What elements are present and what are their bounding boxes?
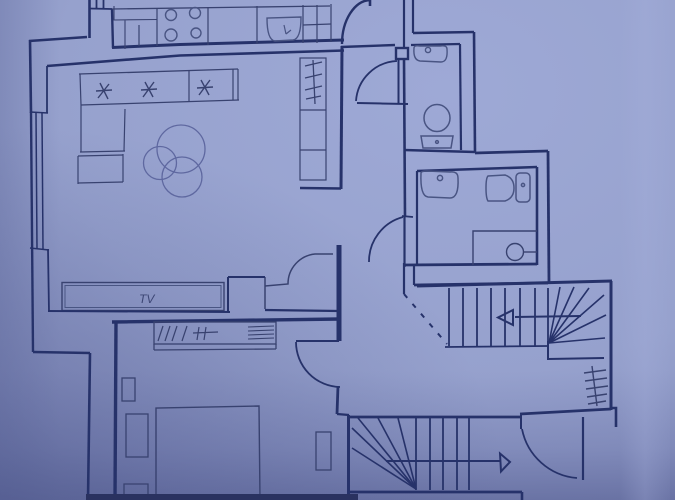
svg-text:TV: TV <box>139 292 155 306</box>
